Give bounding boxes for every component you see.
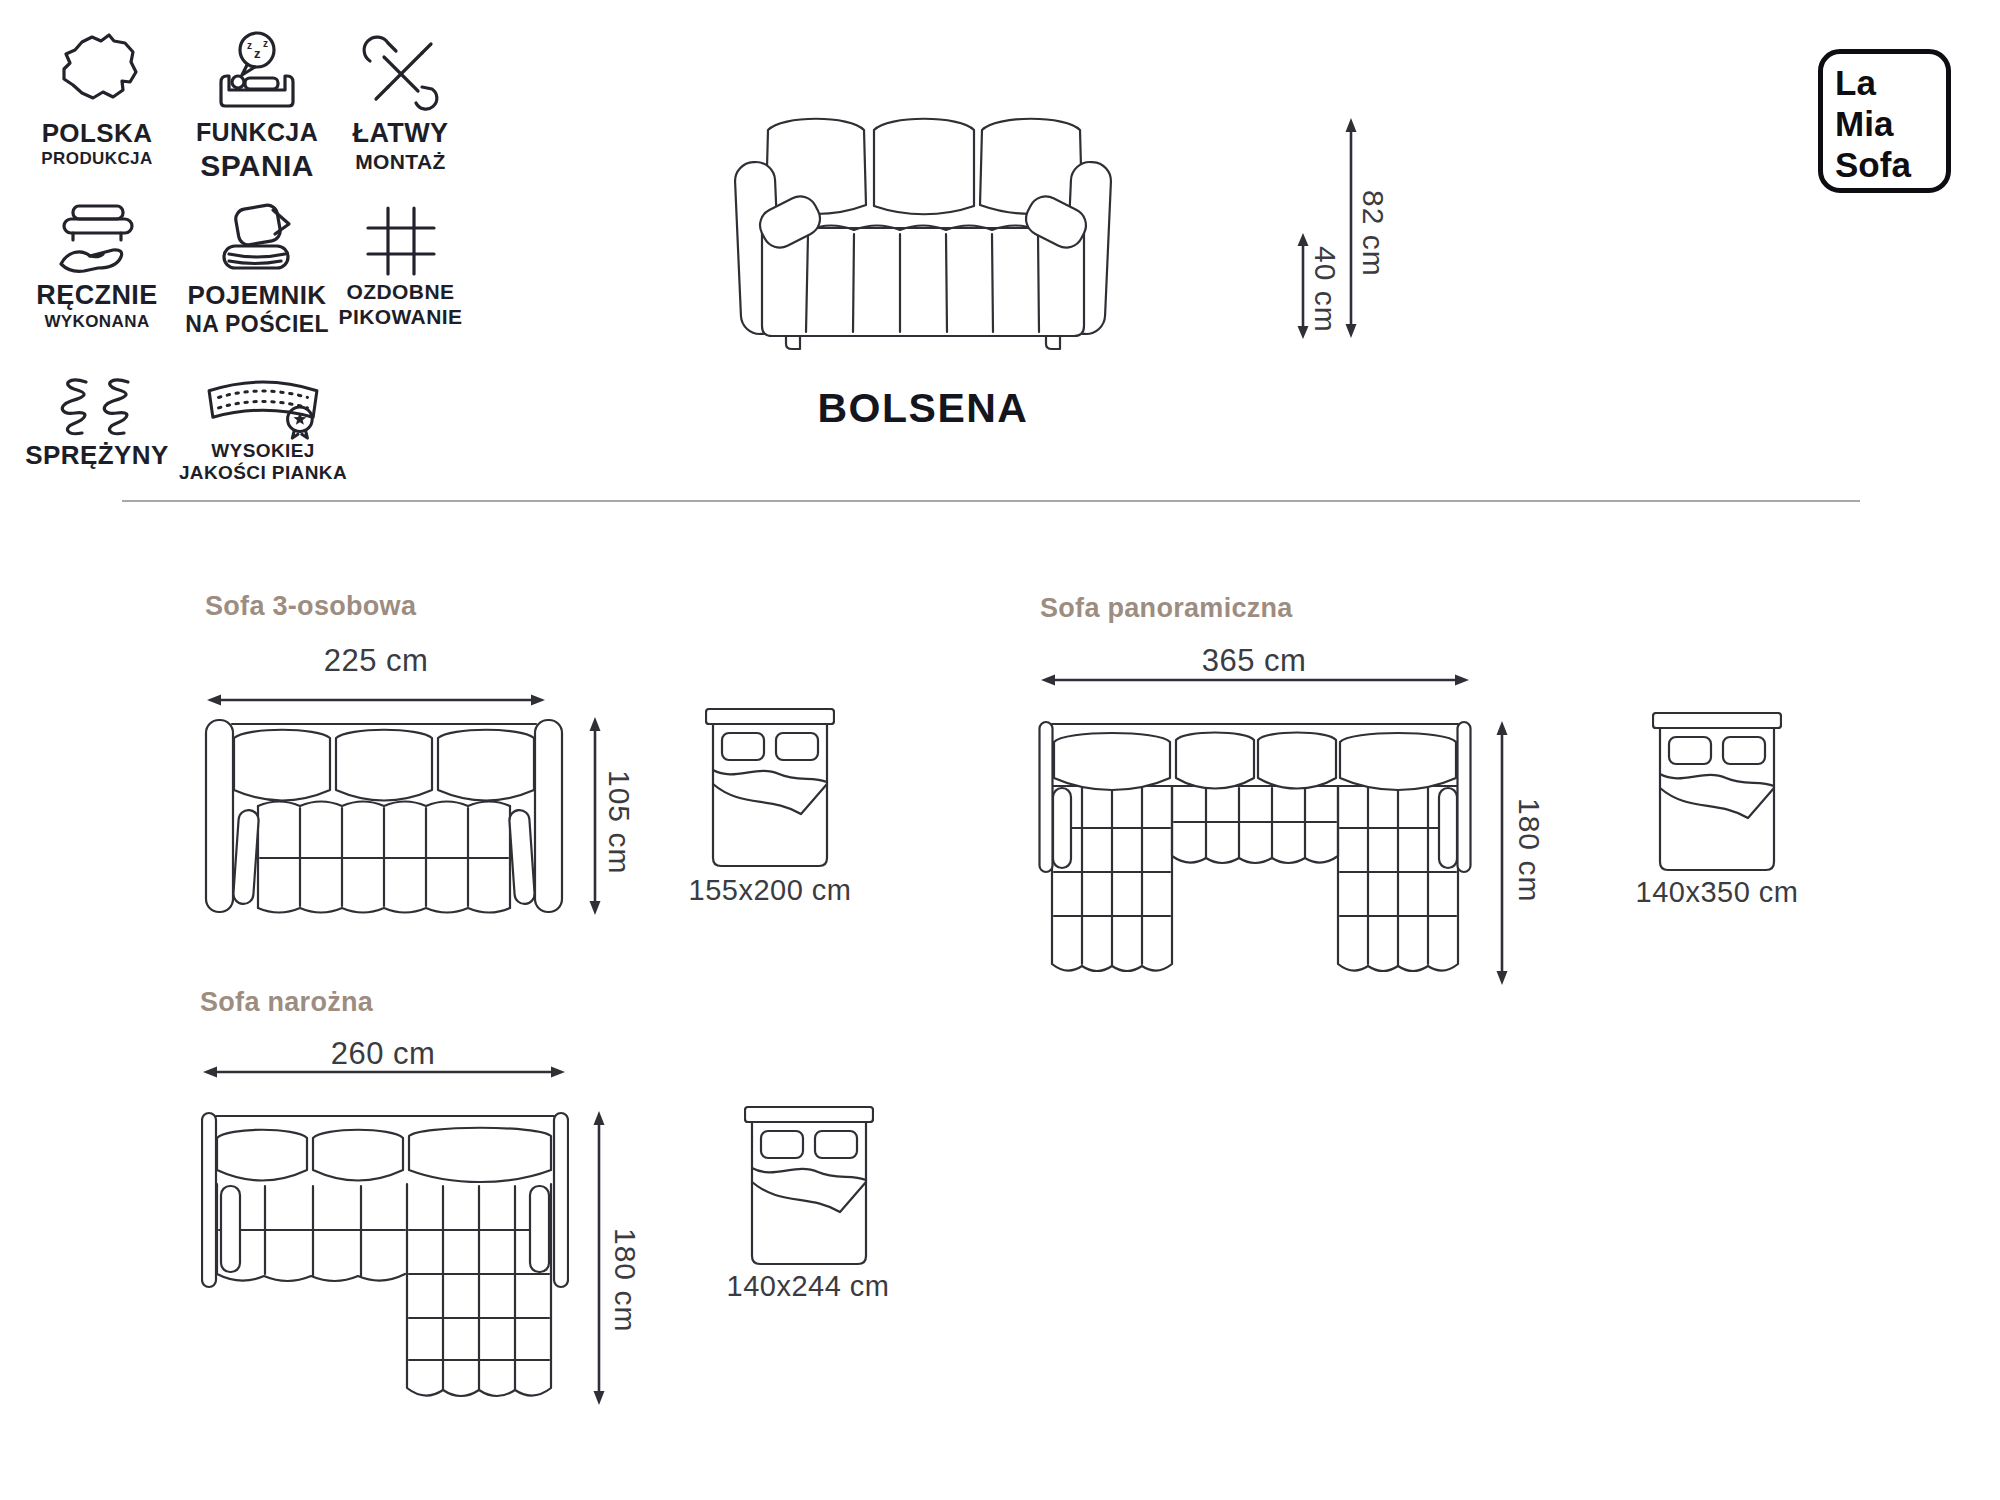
sofa-panoramiczna-top-view-drawing xyxy=(1038,716,1472,988)
feature-ozdobne-pikowanie: OZDOBNE PIKOWANIE xyxy=(318,198,483,330)
easy-assembly-icon xyxy=(318,26,483,118)
feature-label: ŁATWY xyxy=(318,118,483,150)
svg-text:z: z xyxy=(263,38,268,49)
bed-size-label: 140x244 cm xyxy=(708,1270,908,1303)
feature-sublabel: SPANIA xyxy=(172,148,342,183)
feature-sublabel: PIKOWANIE xyxy=(318,305,483,330)
decorative-quilting-icon xyxy=(318,198,483,280)
depth-dimension-arrow xyxy=(590,1110,608,1406)
bed-size-label: 155x200 cm xyxy=(670,874,870,907)
feature-label: FUNKCJA xyxy=(172,118,342,148)
feature-sublabel: MONTAŻ xyxy=(318,150,483,175)
feature-label: POLSKA xyxy=(17,118,177,149)
bed-size-icon xyxy=(744,1106,874,1266)
sofa-narozna-top-view-drawing xyxy=(201,1110,569,1408)
svg-text:z: z xyxy=(254,46,261,61)
feature-wysokiej-jakosci-pianka: WYSOKIEJ JAKOŚCI PIANKA xyxy=(168,370,358,485)
bed-size-icon xyxy=(1652,712,1782,872)
quality-foam-icon xyxy=(168,370,358,440)
width-dimension-arrow xyxy=(1040,671,1470,689)
height-dimension-label: 82 cm xyxy=(1356,190,1390,277)
feature-polska-produkcja: POLSKA PRODUKCJA xyxy=(17,26,177,169)
feature-label: OZDOBNE xyxy=(318,280,483,305)
logo-line-2: Mia xyxy=(1835,103,1946,144)
feature-recznie-wykonana: RĘCZNIE WYKONANA xyxy=(17,198,177,332)
width-dimension-label: 225 cm xyxy=(226,643,526,679)
poland-map-icon xyxy=(17,26,177,118)
handmade-icon xyxy=(17,198,177,280)
feature-latwy-montaz: ŁATWY MONTAŻ xyxy=(318,26,483,175)
product-name: BOLSENA xyxy=(723,385,1123,432)
feature-label: SPRĘŻYNY xyxy=(17,440,177,471)
feature-sublabel: PRODUKCJA xyxy=(17,149,177,169)
logo-line-1: La xyxy=(1835,62,1946,103)
sofa-front-view-drawing xyxy=(732,110,1114,354)
width-dimension-arrow xyxy=(206,691,546,709)
la-mia-sofa-logo: La Mia Sofa xyxy=(1818,49,1951,193)
logo-line-3: Sofa xyxy=(1835,144,1946,185)
width-dimension-arrow xyxy=(202,1063,566,1081)
variant-title-sofa-3-osobowa: Sofa 3-osobowa xyxy=(205,591,416,622)
bed-size-label: 140x350 cm xyxy=(1617,876,1817,909)
variant-title-sofa-narozna: Sofa narożna xyxy=(200,987,373,1018)
sofa-3-osobowa-top-view-drawing xyxy=(204,716,564,918)
depth-dimension-arrow xyxy=(1493,720,1511,986)
depth-dimension-label: 180 cm xyxy=(608,1228,642,1332)
svg-text:z: z xyxy=(247,40,252,51)
feature-sublabel: WYKONANA xyxy=(17,312,177,332)
seat-height-dimension-label: 40 cm xyxy=(1308,246,1342,333)
feature-sublabel: JAKOŚCI PIANKA xyxy=(168,462,358,484)
sleep-function-icon: z z z xyxy=(172,26,342,118)
variant-title-sofa-panoramiczna: Sofa panoramiczna xyxy=(1040,593,1293,624)
bed-size-icon xyxy=(705,708,835,868)
feature-funkcja-spania: z z z FUNKCJA SPANIA xyxy=(172,26,342,183)
feature-sprezyny: SPRĘŻYNY xyxy=(17,370,177,471)
depth-dimension-label: 105 cm xyxy=(602,770,636,874)
feature-label: RĘCZNIE xyxy=(17,280,177,312)
section-divider xyxy=(122,500,1860,502)
feature-label: WYSOKIEJ xyxy=(168,440,358,462)
springs-icon xyxy=(17,370,177,440)
depth-dimension-label: 180 cm xyxy=(1512,798,1546,902)
